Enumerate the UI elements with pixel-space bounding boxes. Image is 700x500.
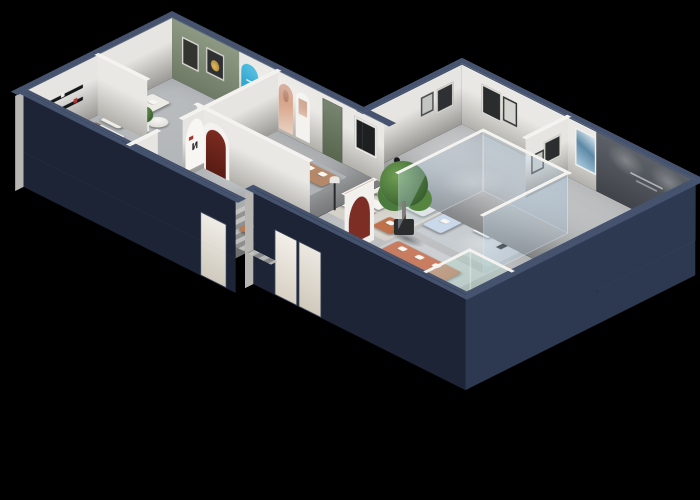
pillow xyxy=(317,171,328,177)
showroom-render: N xyxy=(0,0,700,500)
gold-disc-art xyxy=(211,58,219,73)
pillow xyxy=(397,246,408,252)
pillow xyxy=(439,218,450,224)
framed-art-icon xyxy=(354,116,377,160)
framed-art-icon xyxy=(482,84,502,123)
pillow xyxy=(414,254,425,260)
pillow xyxy=(147,99,158,105)
n-poster-arch: N xyxy=(185,114,204,172)
framed-art-icon xyxy=(436,81,453,114)
wall-end-cap xyxy=(245,189,253,289)
lamp-pole xyxy=(334,183,336,210)
entry-door-panel xyxy=(299,241,322,318)
wall-end-cap xyxy=(15,92,23,192)
lamp-shade xyxy=(330,176,340,183)
poster-letter: N xyxy=(192,140,199,153)
framed-art-icon xyxy=(421,91,434,116)
blue-abstract-art xyxy=(575,127,596,176)
framed-art-icon xyxy=(503,96,517,127)
recessed-window xyxy=(200,211,226,288)
poster-red-mark xyxy=(189,135,193,141)
tree-pot xyxy=(394,219,414,235)
entry-door-panel xyxy=(275,229,298,306)
